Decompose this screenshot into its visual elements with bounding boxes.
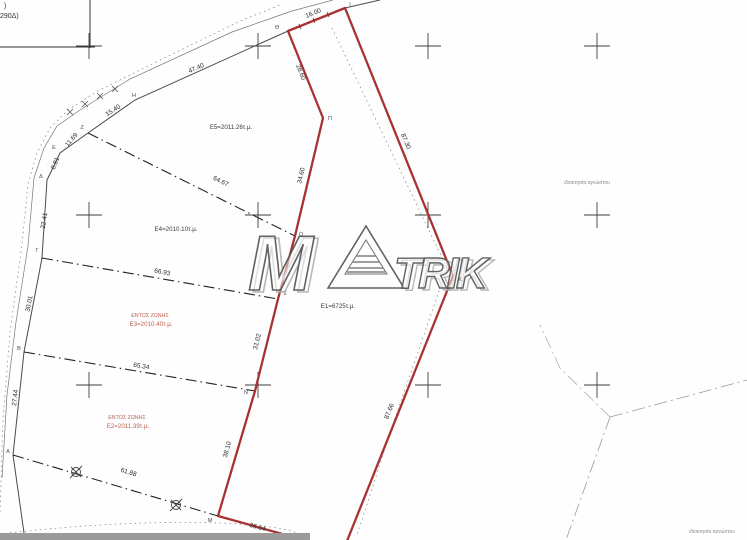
point-N: Ν (244, 390, 248, 396)
point-M: Μ (208, 518, 213, 524)
dim-31-02: 31.02 (252, 333, 263, 351)
survey-plan-canvas: M TRIK M TRIK )290Δ)47.4015.4011.698.812… (0, 0, 747, 540)
dim-38-10: 38.10 (222, 440, 233, 458)
point-O: Ο (299, 232, 304, 238)
corner-fragment-line1: ) (4, 3, 6, 10)
area-label-e1: Ε1=6725τ.μ. (321, 303, 356, 310)
divider-g-xi (42, 258, 278, 299)
watermark-letters-trik: TRIK (394, 249, 491, 298)
dim-66-93: 66.93 (154, 268, 172, 278)
pole-icon (70, 466, 82, 478)
area-label-e5: Ε5=2011.26τ.μ. (210, 124, 253, 131)
dim-65-34: 65.34 (133, 362, 151, 372)
dim-8-81: 8.81 (50, 156, 61, 171)
point-B: Β (17, 346, 21, 352)
watermark-letter-m: M (248, 219, 315, 307)
neighbour-branch-ne (610, 380, 747, 417)
dim-15-40: 15.40 (104, 103, 122, 118)
owner-note-lower: ιδιοκτησία αγνώστου (689, 528, 735, 535)
zone-label-e3-line2: Ε3=2010.40τ.μ. (130, 321, 173, 328)
point-Th: Θ (275, 25, 280, 31)
point-Z: Ζ (80, 125, 84, 131)
zone-label-e2-line2: Ε2=2011.39τ.μ. (107, 423, 150, 430)
point-A: Α (6, 449, 10, 455)
dim-28-60: 28.60 (294, 64, 307, 82)
point-Xi: Ξ (283, 291, 287, 297)
point-G: Γ (35, 248, 38, 254)
pole-icon (170, 499, 182, 511)
dim-30-01: 30.01 (25, 295, 35, 313)
point-K: Κ (458, 277, 462, 283)
corner-fragment-line2: 290Δ) (0, 13, 19, 20)
point-D: Δ (39, 174, 43, 180)
cadastral-survey-drawing: M TRIK M TRIK )290Δ)47.4015.4011.698.812… (0, 0, 747, 540)
dim-87-66: 87.66 (383, 402, 396, 420)
property-boundary-line (13, 0, 380, 540)
grid-crosses (76, 33, 610, 398)
neighbour-boundary-lines (540, 325, 747, 540)
area-label-e4: Ε4=2010.10τ.μ. (155, 226, 198, 233)
zone-label-e2-line1: ΕΝΤΟΣ ΖΩΝΗΣ (108, 415, 146, 421)
dim-61-88: 61.88 (120, 467, 138, 479)
owner-note-upper: ιδιοκτησία αγνώστου (564, 179, 610, 186)
neighbour-branch-nw (540, 325, 610, 417)
zone-label-e3-line1: ΕΝΤΟΣ ΖΩΝΗΣ (131, 313, 169, 319)
divider-a-m (13, 455, 218, 516)
divider-b-n (24, 352, 255, 391)
dim-36-64: 36.64 (249, 522, 267, 533)
point-Pi: Π (328, 116, 332, 122)
watermark-triangle-outer (328, 226, 404, 288)
point-E: Ε (52, 145, 56, 151)
dim-64-67: 64.67 (212, 175, 230, 189)
dim-47-40: 47.40 (188, 62, 206, 75)
scan-artifact-band (0, 533, 310, 540)
dim-22-41: 22.41 (40, 212, 50, 230)
neighbour-branch-s (566, 417, 610, 540)
dim-34-60: 34.60 (296, 167, 307, 185)
point-H: Η (132, 93, 136, 99)
dim-11-69: 11.69 (64, 131, 80, 148)
frame-corner-lines (0, 0, 95, 48)
